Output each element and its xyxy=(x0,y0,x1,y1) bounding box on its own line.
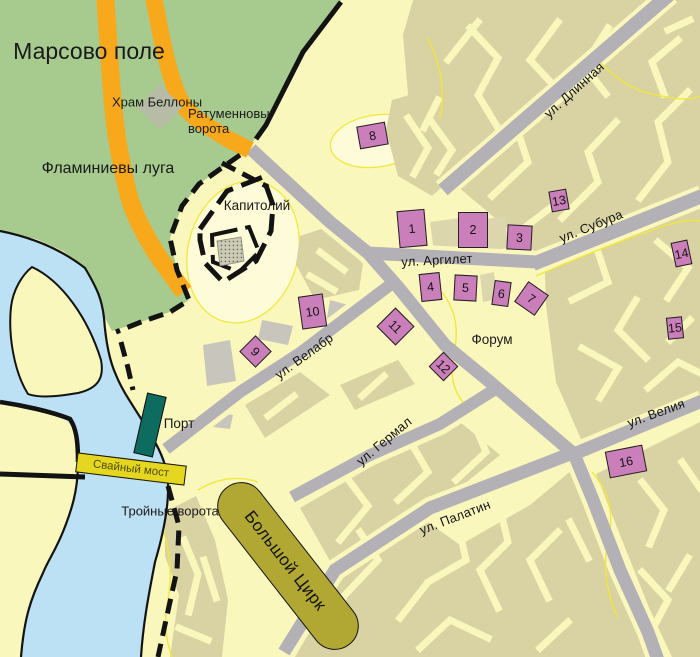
map-marker-8[interactable]: 8 xyxy=(356,121,389,149)
map-marker-13[interactable]: 13 xyxy=(548,188,569,212)
map-marker-3[interactable]: 3 xyxy=(506,224,532,250)
map-marker-10[interactable]: 10 xyxy=(297,293,326,329)
map-marker-1[interactable]: 1 xyxy=(396,208,427,247)
map-marker-6[interactable]: 6 xyxy=(491,279,511,306)
map-marker-4[interactable]: 4 xyxy=(418,272,442,302)
map-marker-15[interactable]: 15 xyxy=(666,316,684,340)
ancient-rome-map: Большой Цирк Свайный мост 12345678910111… xyxy=(0,0,700,657)
map-base-layer xyxy=(0,0,700,657)
map-marker-2[interactable]: 2 xyxy=(458,212,488,248)
map-marker-5[interactable]: 5 xyxy=(453,274,477,301)
capitol-temple xyxy=(217,237,244,266)
